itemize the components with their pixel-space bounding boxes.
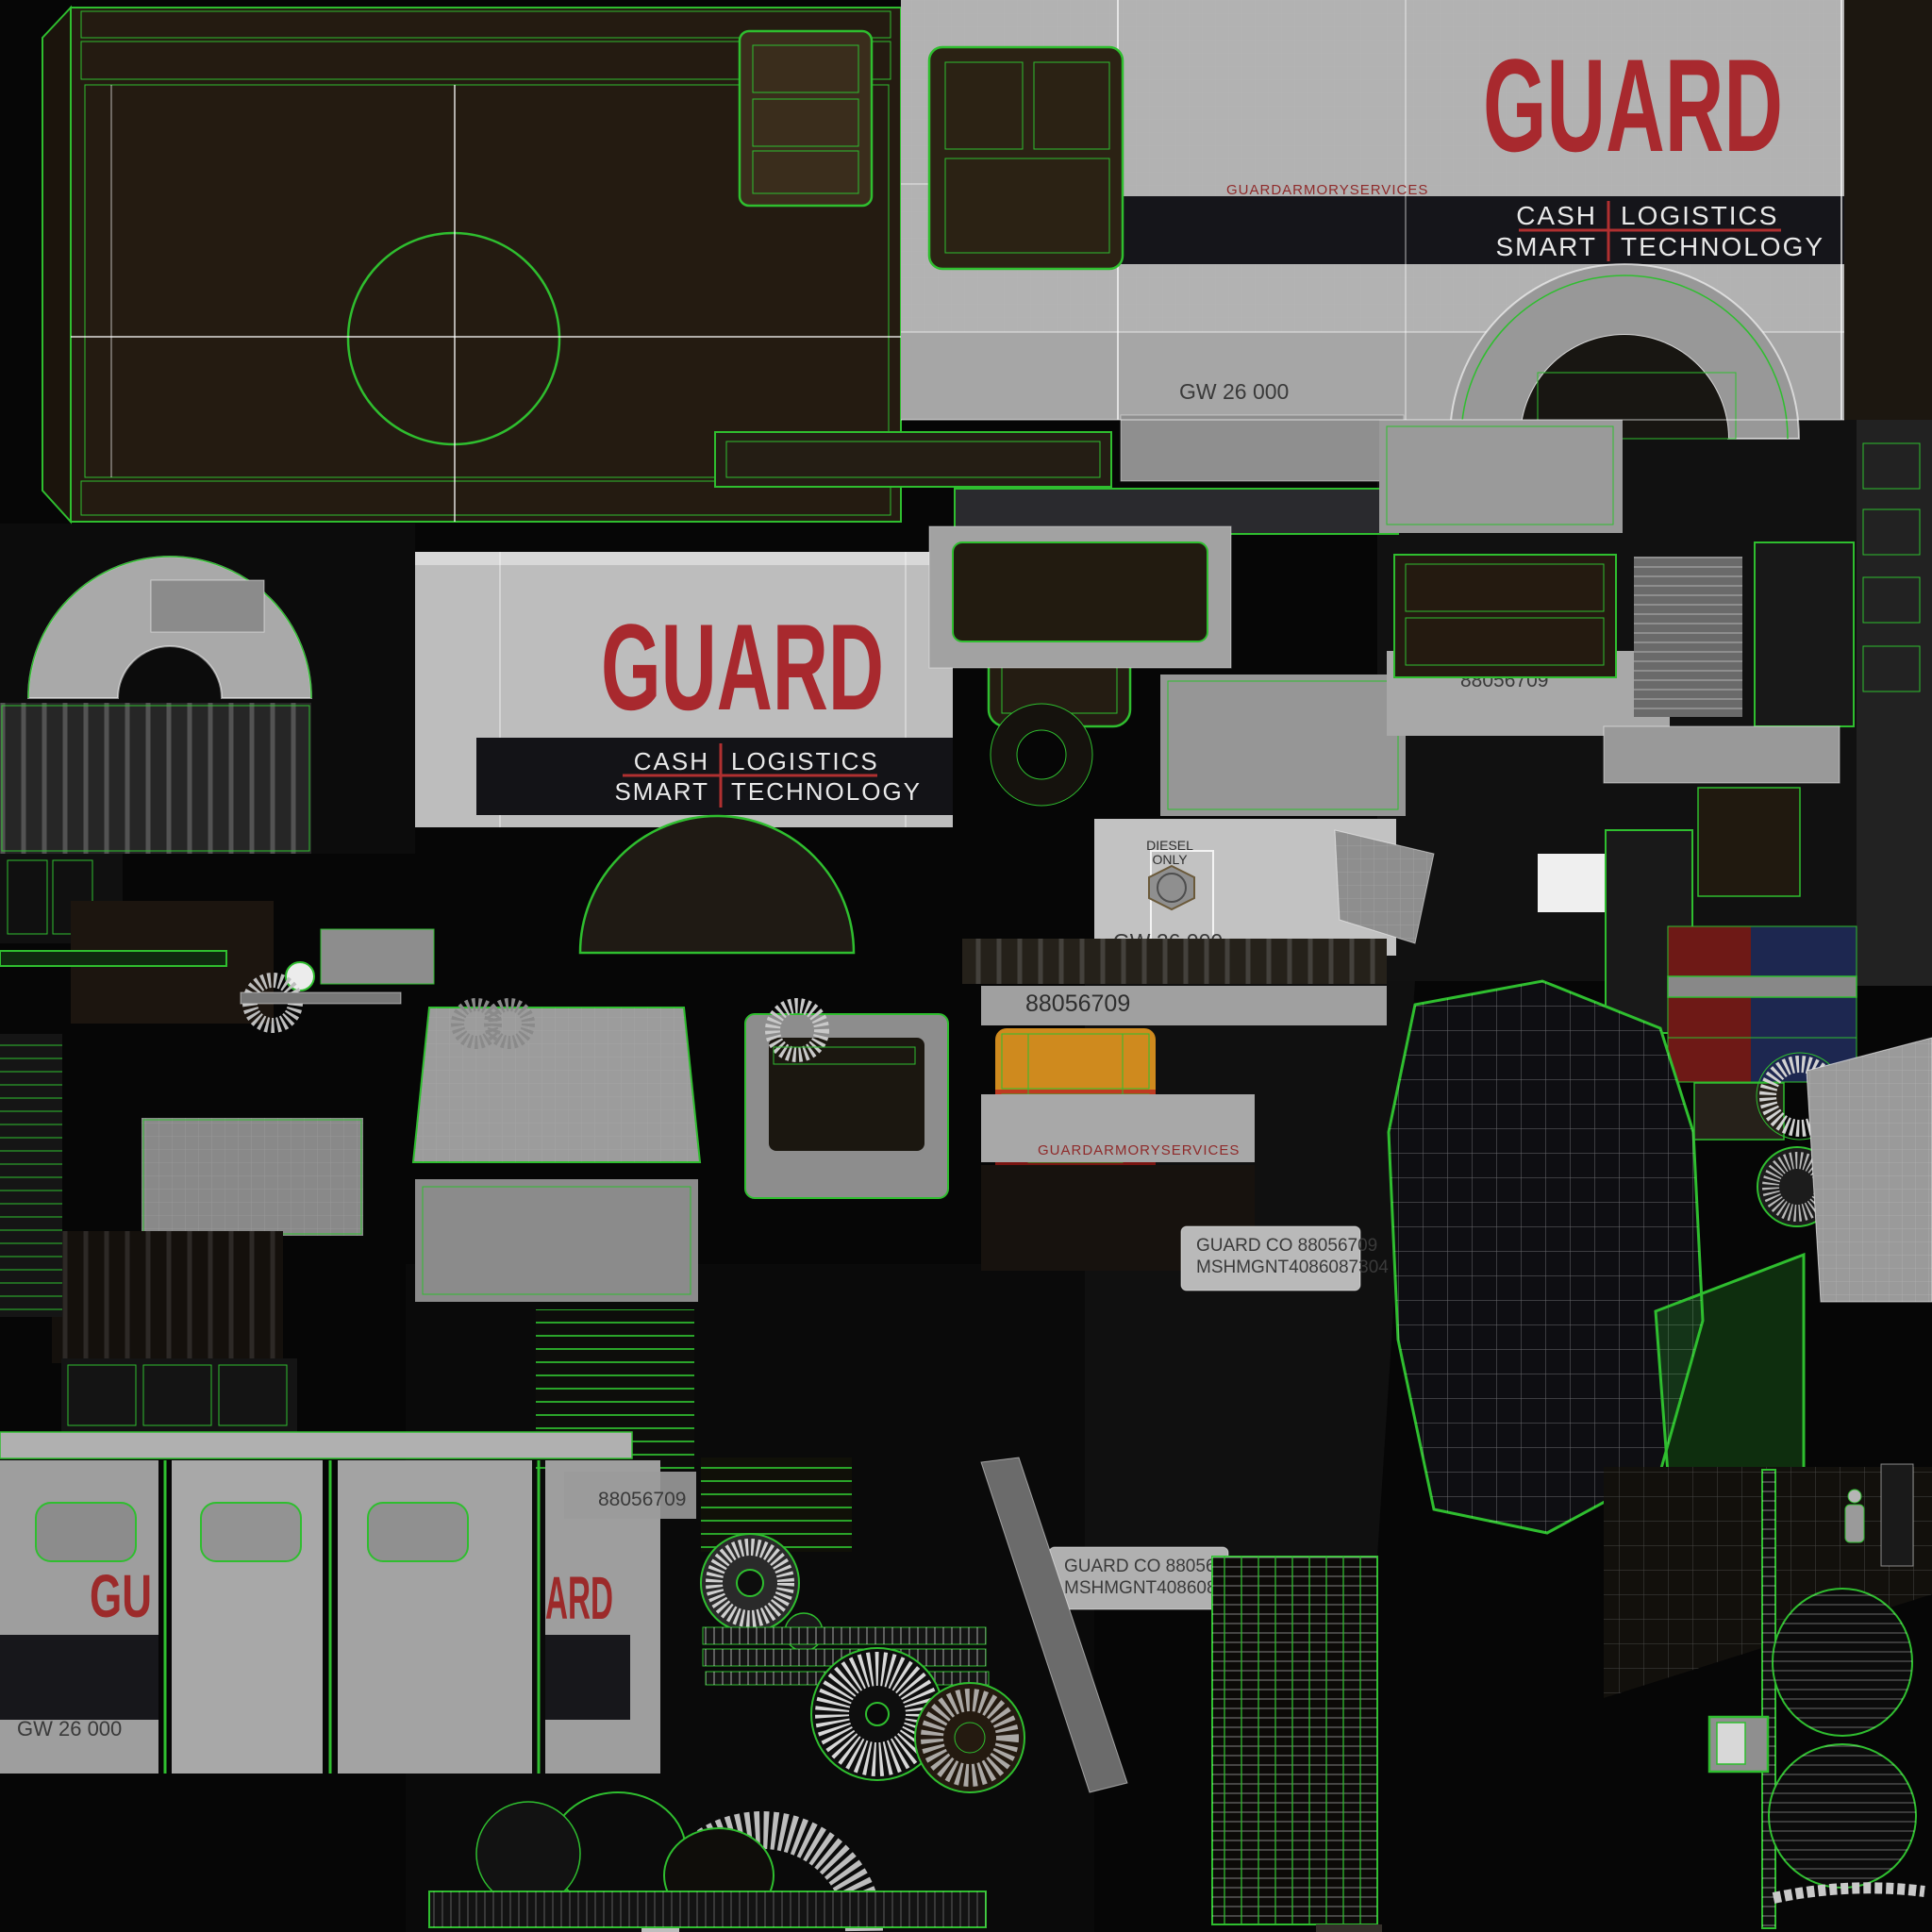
texture-atlas: GUARD GUARDARMORYSERVICES CASH LOGISTICS… — [0, 0, 1932, 1932]
figure-uv — [1845, 1490, 1864, 1542]
guard-logo-mid: GUARD — [601, 598, 884, 736]
guard-logo-top: GUARD — [1483, 31, 1783, 179]
mshmgnt-text-1: MSHMGNT4086087304 — [1196, 1257, 1389, 1277]
mirror-uv — [1709, 1717, 1768, 1772]
guard-co-text-1: GUARD CO 88056709 — [1196, 1236, 1377, 1256]
tagline-smart: SMART — [1496, 232, 1598, 261]
serial-number-3: 88056709 — [598, 1489, 686, 1510]
tagline-smart: SMART — [614, 777, 709, 806]
only-text: ONLY — [1152, 852, 1188, 867]
door-band — [0, 1635, 158, 1720]
tagline-mid: CASH LOGISTICS SMART TECHNOLOGY — [614, 743, 922, 808]
door-window-uv — [368, 1503, 468, 1561]
interior-box-uv — [740, 31, 872, 206]
armory-services-text-mid: GUARDARMORYSERVICES — [1038, 1142, 1240, 1158]
guard-logo-partial-right: ARD — [545, 1564, 613, 1632]
tagline-cash: CASH — [1516, 201, 1597, 230]
armory-services-text-top: GUARDARMORYSERVICES — [1226, 182, 1428, 198]
tagline-logistics: LOGISTICS — [1621, 201, 1778, 230]
tagline-logistics: LOGISTICS — [731, 747, 879, 775]
tagline-top: CASH LOGISTICS SMART TECHNOLOGY — [1496, 201, 1825, 261]
guard-logo-partial-left: GU — [90, 1562, 152, 1630]
door-band — [545, 1635, 630, 1720]
tagline-cash: CASH — [634, 747, 709, 775]
diesel-text: DIESEL — [1146, 838, 1193, 853]
tagline-technology: TECHNOLOGY — [1621, 232, 1824, 261]
gw-marking-bottom: GW 26 000 — [17, 1717, 122, 1740]
license-plate-1: GUARD CO 88056709 MSHMGNT4086087304 — [1181, 1226, 1389, 1291]
serial-number-2: 88056709 — [1025, 991, 1130, 1017]
tagline-technology: TECHNOLOGY — [731, 777, 922, 806]
door-row-uv: GUARD CO 88056709 MSHMGNT4086087304 GU A… — [0, 1432, 660, 1774]
dark-side-strip — [1844, 0, 1932, 420]
atlas-canvas: GUARD GUARDARMORYSERVICES CASH LOGISTICS… — [0, 0, 1932, 1932]
radiator-grille-uv — [1212, 1557, 1382, 1932]
seat-cushion-uv — [1668, 926, 1857, 1082]
door-window-uv — [36, 1503, 136, 1561]
headlight-uv — [286, 962, 314, 991]
door-window-uv — [201, 1503, 301, 1561]
truck-side-panel-top: GUARD GUARDARMORYSERVICES CASH LOGISTICS… — [901, 0, 1932, 439]
gw-marking-top: GW 26 000 — [1179, 379, 1289, 404]
